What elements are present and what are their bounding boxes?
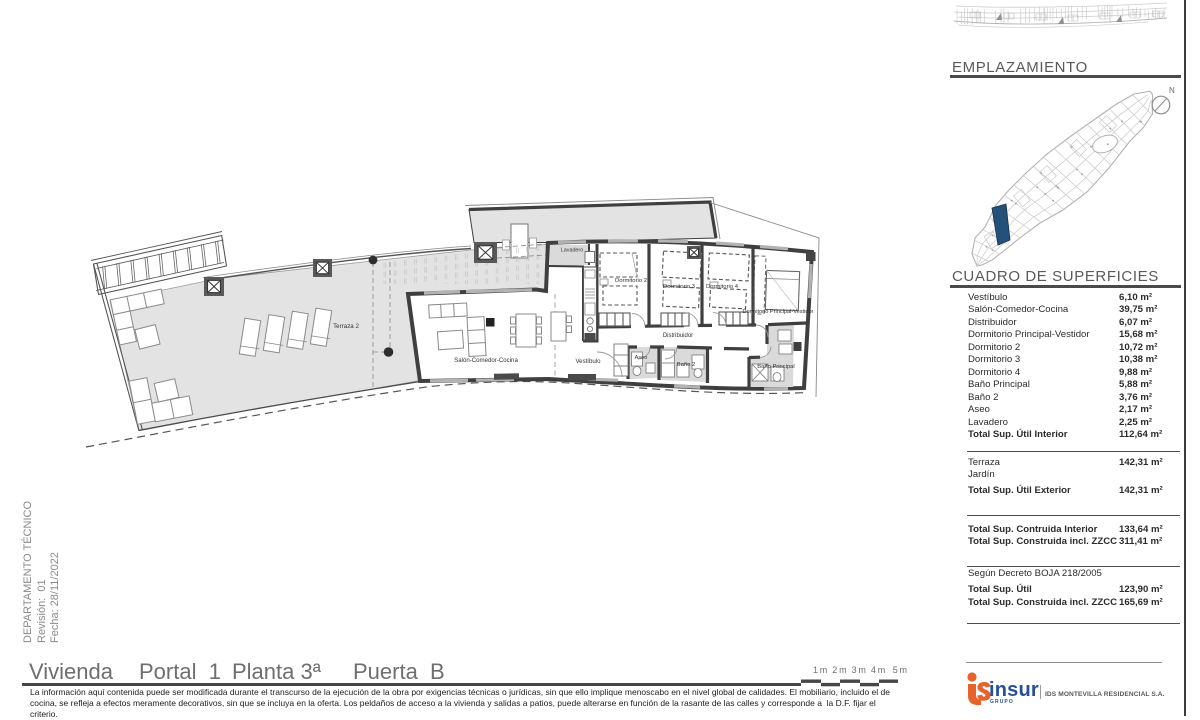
svg-text:Dormitorio 4: Dormitorio 4 (706, 284, 739, 290)
svg-text:Aseo: Aseo (635, 355, 648, 361)
svg-text:Dormitorio 3: Dormitorio 3 (663, 284, 696, 290)
svg-text:Dormitorio 2: Dormitorio 2 (615, 278, 647, 284)
svg-text:N: N (1169, 86, 1175, 95)
svg-text:Terraza 2: Terraza 2 (333, 323, 359, 330)
svg-text:Baño 2: Baño 2 (677, 362, 696, 368)
svg-text:Distribuidor: Distribuidor (663, 333, 693, 339)
svg-text:Vestíbulo: Vestíbulo (575, 358, 601, 365)
svg-text:Lavadero: Lavadero (561, 248, 583, 254)
svg-text:Dormitorio Principal-Vestidor: Dormitorio Principal-Vestidor (743, 309, 814, 315)
svg-text:Baño Principal: Baño Principal (757, 364, 794, 370)
svg-text:Salón-Comedor-Cocina: Salón-Comedor-Cocina (454, 357, 518, 364)
